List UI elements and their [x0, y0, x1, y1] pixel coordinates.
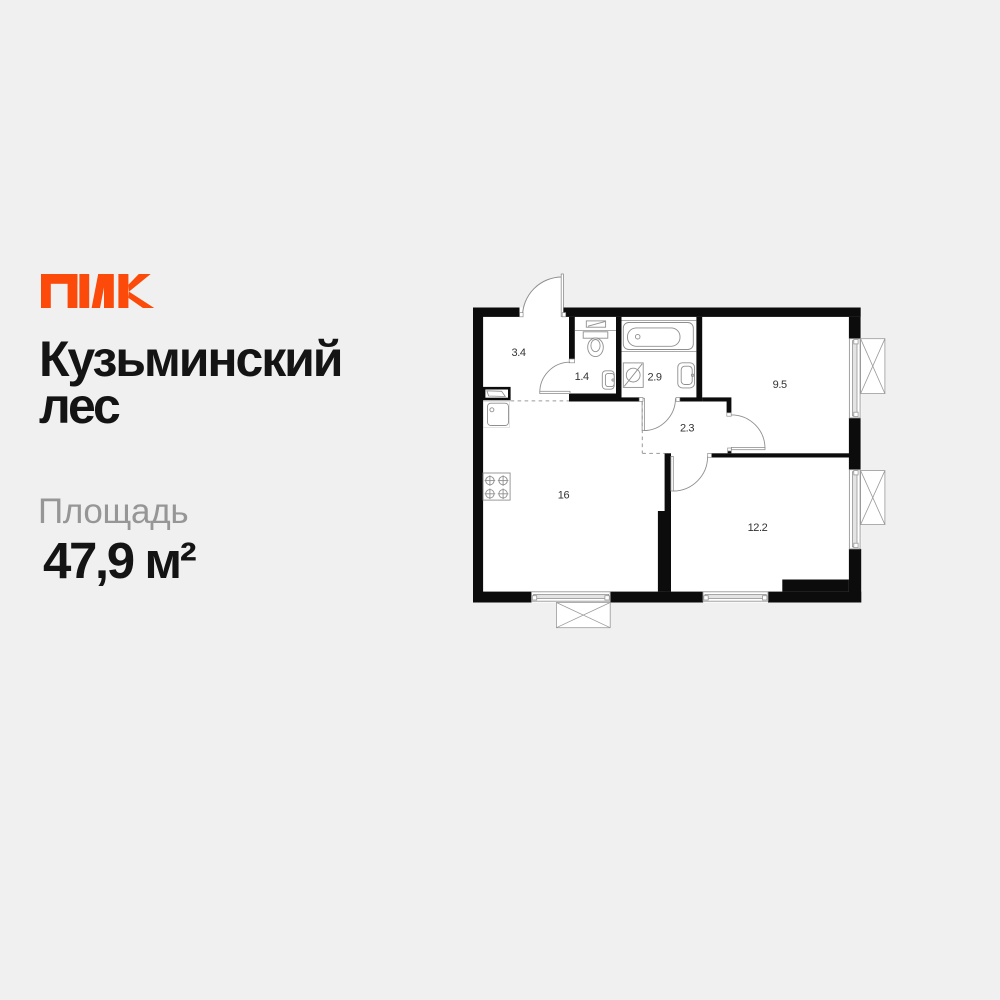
svg-text:12.2: 12.2 — [748, 522, 768, 534]
svg-text:9.5: 9.5 — [773, 379, 787, 391]
svg-text:2.3: 2.3 — [680, 422, 694, 434]
svg-text:2.9: 2.9 — [648, 371, 662, 383]
svg-text:1.4: 1.4 — [575, 371, 589, 383]
svg-text:3.4: 3.4 — [512, 347, 526, 359]
svg-text:16: 16 — [558, 489, 570, 501]
